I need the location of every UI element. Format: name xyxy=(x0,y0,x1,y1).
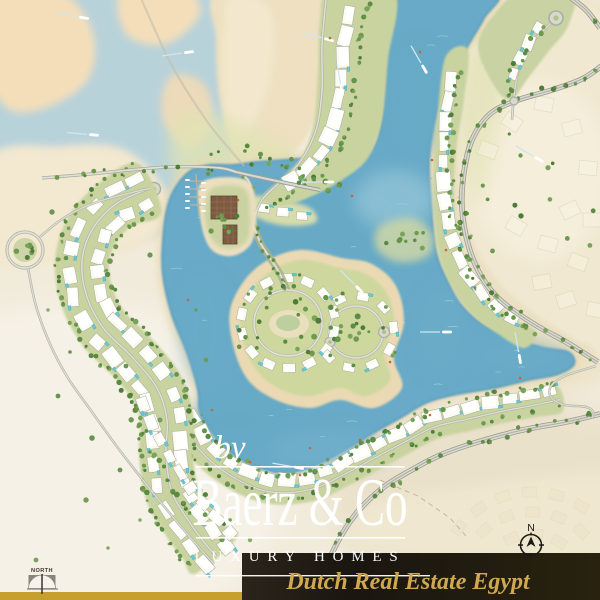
svg-text:Dutch Real Estate Egypt: Dutch Real Estate Egypt xyxy=(285,569,531,595)
svg-text:LUXURY HOMES: LUXURY HOMES xyxy=(195,549,406,565)
svg-text:N: N xyxy=(527,522,535,534)
svg-text:by: by xyxy=(214,430,246,466)
svg-text:NORTH: NORTH xyxy=(31,568,53,574)
svg-text:Baerz & Co: Baerz & Co xyxy=(193,466,408,540)
